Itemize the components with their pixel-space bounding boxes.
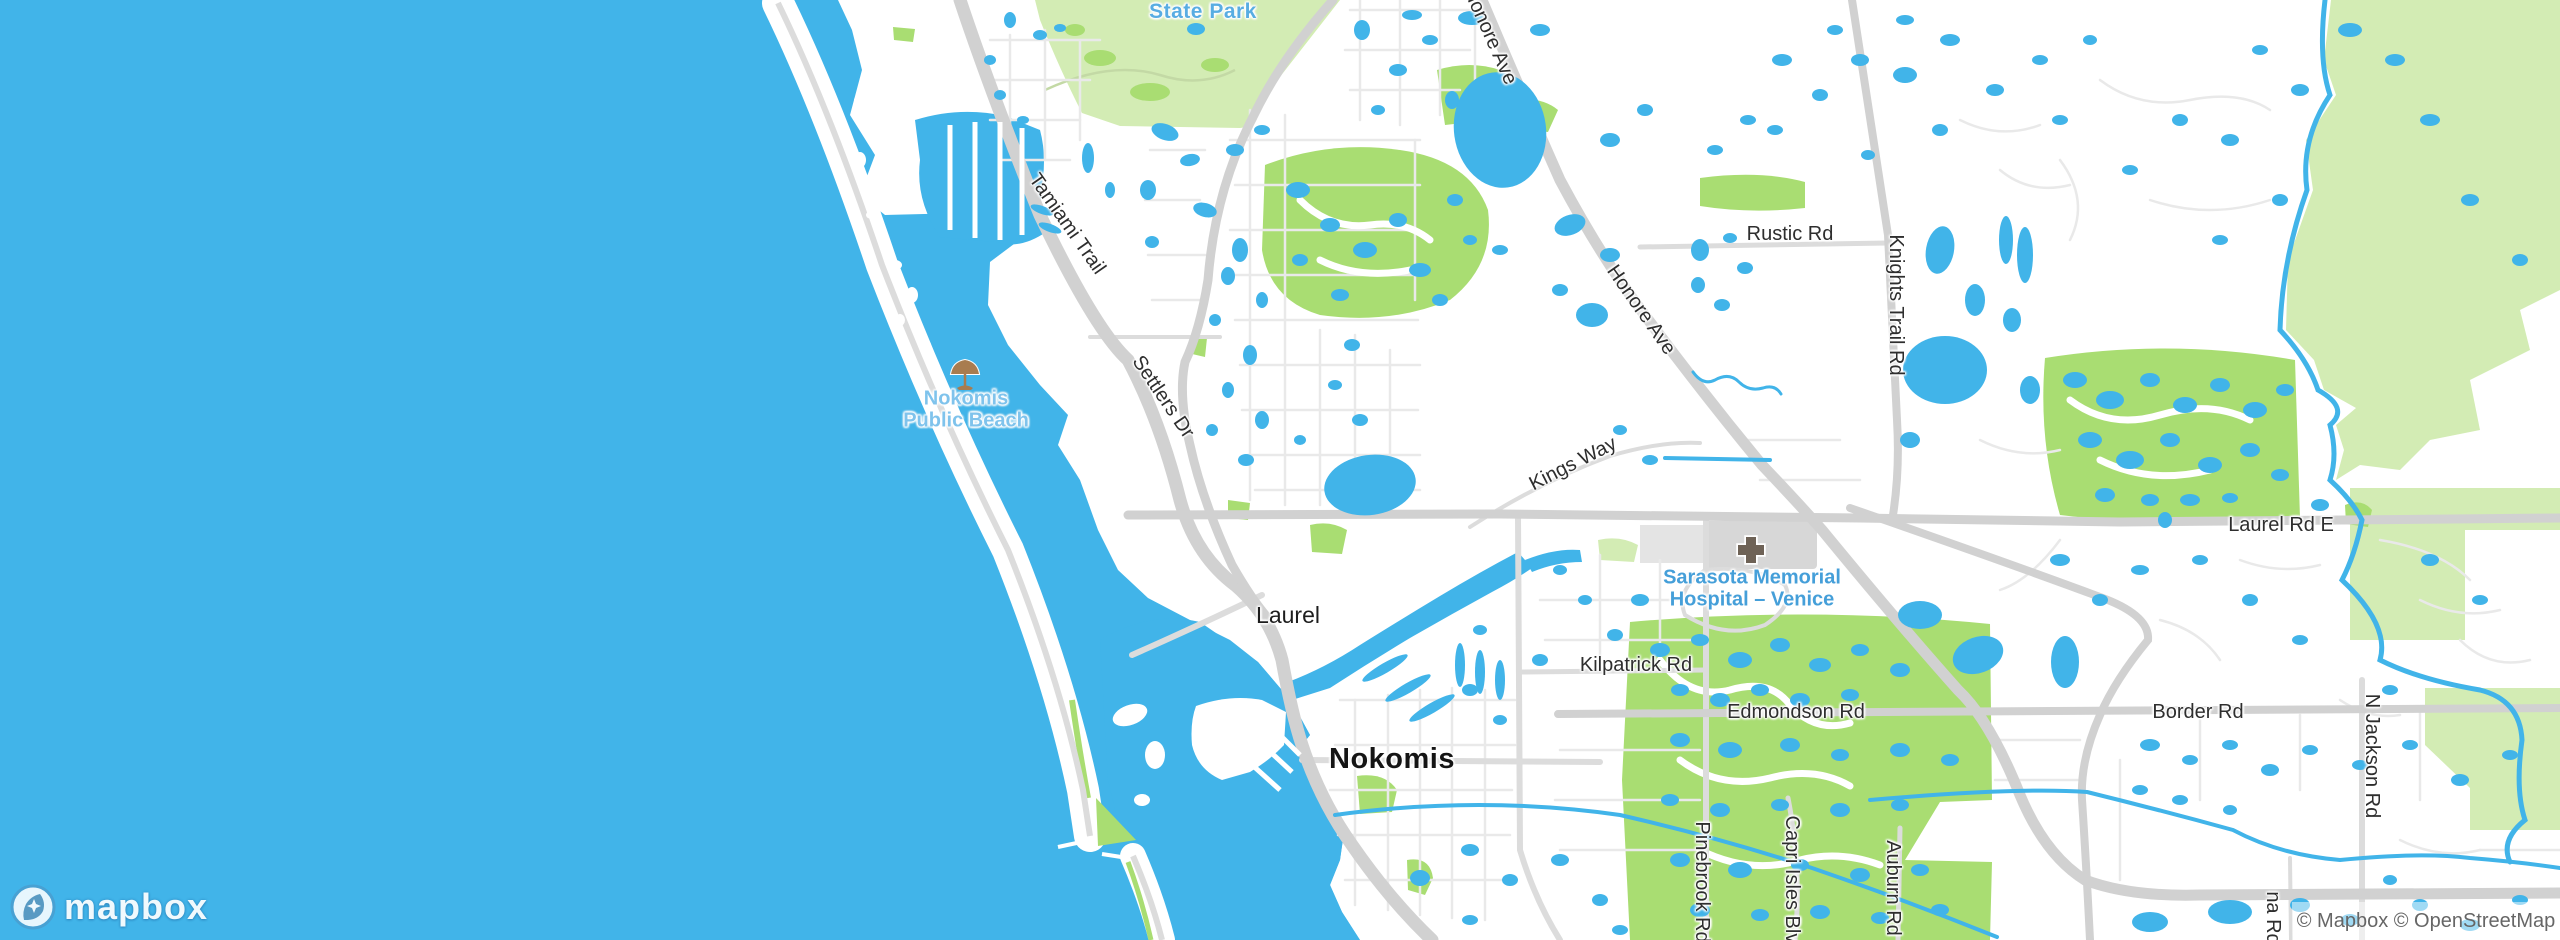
mapbox-logo-icon bbox=[10, 884, 56, 930]
label-knights-trail-rd: Knights Trail Rd bbox=[1885, 234, 1907, 375]
label-laurel: Laurel bbox=[1256, 603, 1320, 629]
hospital-label-line2: Hospital – Venice bbox=[1670, 589, 1835, 611]
beach-label-line1: Nokomis bbox=[924, 388, 1008, 410]
map-attribution[interactable]: © Mapbox © OpenStreetMap bbox=[2292, 902, 2560, 940]
hospital-label-line1: Sarasota Memorial bbox=[1663, 567, 1841, 589]
label-n-jackson-rd: N Jackson Rd bbox=[2361, 694, 2383, 819]
label-nokomis: Nokomis bbox=[1329, 743, 1455, 775]
mapbox-logo[interactable]: mapbox bbox=[10, 884, 208, 930]
label-edmondson-rd: Edmondson Rd bbox=[1727, 701, 1865, 723]
label-kilpatrick-rd: Kilpatrick Rd bbox=[1580, 654, 1692, 676]
label-auburn-rd: Auburn Rd bbox=[1882, 840, 1904, 936]
label-hospital: Sarasota Memorial Hospital – Venice bbox=[1663, 567, 1841, 612]
map-base-layer bbox=[0, 0, 2560, 940]
label-border-rd: Border Rd bbox=[2152, 701, 2243, 723]
label-laurel-rd-e: Laurel Rd E bbox=[2228, 514, 2334, 536]
beach-label-line2: Public Beach bbox=[903, 410, 1029, 432]
label-state-park: State Park bbox=[1149, 0, 1257, 24]
mapbox-logo-word: mapbox bbox=[64, 886, 208, 928]
label-pinebrook-rd: Pinebrook Rd bbox=[1691, 821, 1713, 940]
label-na-rd: na Rd bbox=[2262, 891, 2284, 940]
label-nokomis-public-beach: Nokomis Public Beach bbox=[903, 388, 1029, 433]
map-canvas[interactable]: State Park Honore Ave Tamiami Trail Sett… bbox=[0, 0, 2560, 940]
label-capri-isles-blvd: Capri Isles Blvd bbox=[1781, 816, 1803, 940]
label-rustic-rd: Rustic Rd bbox=[1747, 223, 1834, 245]
